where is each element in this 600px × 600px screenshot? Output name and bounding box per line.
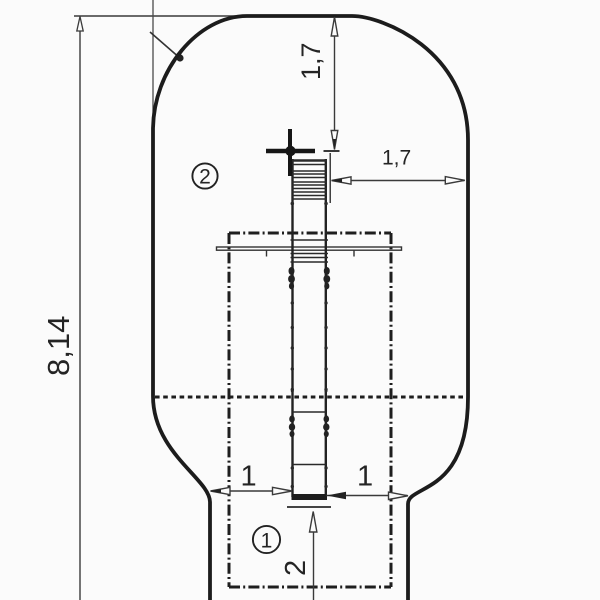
svg-text:2: 2 bbox=[199, 166, 211, 189]
svg-text:1: 1 bbox=[261, 530, 273, 553]
svg-text:2: 2 bbox=[280, 560, 312, 576]
svg-text:1: 1 bbox=[357, 461, 373, 493]
svg-text:1: 1 bbox=[241, 461, 257, 493]
svg-text:8,14: 8,14 bbox=[41, 316, 76, 376]
svg-text:1,7: 1,7 bbox=[296, 42, 326, 80]
svg-text:1,7: 1,7 bbox=[382, 147, 411, 170]
